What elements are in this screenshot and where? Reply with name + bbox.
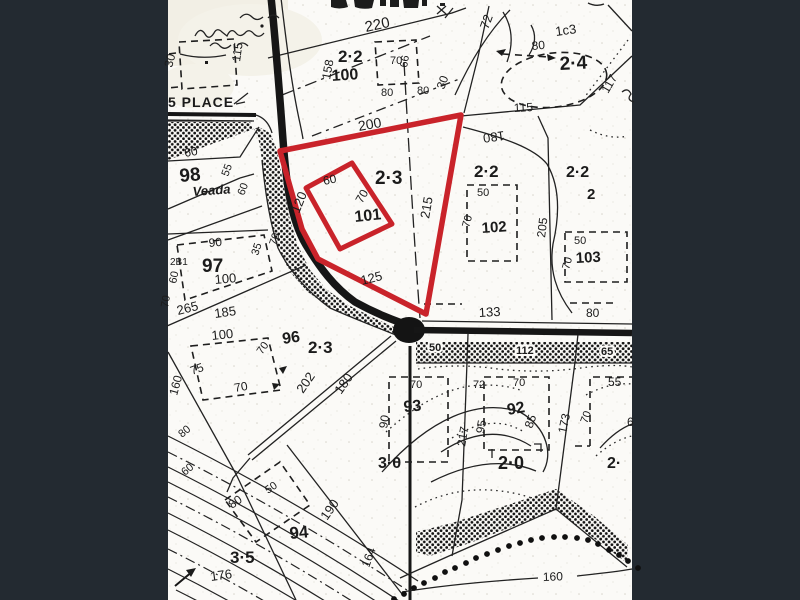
svg-text:90: 90 (208, 235, 223, 250)
svg-text:6: 6 (627, 415, 634, 429)
svg-text:2: 2 (587, 186, 595, 203)
svg-text:101: 101 (354, 206, 382, 226)
svg-text:50: 50 (477, 187, 489, 199)
svg-text:92: 92 (506, 399, 527, 419)
svg-text:3·0: 3·0 (378, 455, 401, 472)
svg-text:1c3: 1c3 (554, 21, 577, 39)
svg-text:100: 100 (214, 270, 237, 287)
svg-text:65: 65 (601, 346, 613, 358)
svg-text:66: 66 (398, 54, 412, 68)
svg-text:5 PLACE: 5 PLACE (168, 94, 234, 110)
svg-text:2·4: 2·4 (559, 53, 588, 75)
svg-text:80: 80 (586, 306, 600, 320)
svg-text:60: 60 (167, 270, 181, 284)
svg-text:90: 90 (376, 414, 392, 430)
svg-text:70: 70 (159, 294, 173, 308)
svg-text:205: 205 (534, 216, 550, 238)
svg-text:96: 96 (281, 329, 301, 348)
svg-text:2·2: 2·2 (338, 47, 363, 66)
svg-text:72: 72 (473, 379, 485, 391)
svg-text:60: 60 (183, 144, 199, 160)
svg-text:70: 70 (410, 379, 422, 391)
svg-text:70: 70 (513, 377, 525, 389)
svg-text:185: 185 (213, 303, 237, 321)
svg-text:80: 80 (417, 85, 429, 97)
svg-text:70: 70 (233, 379, 249, 395)
svg-text:115: 115 (229, 41, 246, 62)
svg-text:100: 100 (211, 326, 234, 343)
svg-text:176: 176 (209, 566, 233, 584)
svg-text:93: 93 (403, 397, 422, 415)
svg-text:2B1: 2B1 (170, 257, 188, 268)
svg-text:Veada: Veada (192, 181, 231, 199)
svg-text:55: 55 (608, 375, 622, 389)
svg-text:115: 115 (513, 100, 533, 115)
svg-text:95: 95 (473, 419, 489, 435)
svg-text:100: 100 (331, 66, 359, 85)
svg-text:2·: 2· (607, 455, 621, 472)
svg-text:80: 80 (531, 38, 546, 53)
svg-text:103: 103 (575, 249, 601, 267)
svg-text:2·3: 2·3 (308, 338, 333, 357)
svg-text:3·5: 3·5 (230, 548, 255, 567)
svg-text:102: 102 (481, 218, 507, 237)
svg-text:50: 50 (574, 235, 586, 247)
svg-text:94: 94 (289, 522, 310, 543)
svg-text:2·2: 2·2 (566, 164, 589, 181)
svg-text:180: 180 (482, 128, 506, 146)
svg-text:80: 80 (381, 87, 393, 99)
svg-text:2·3: 2·3 (375, 168, 402, 189)
svg-text:50: 50 (429, 342, 441, 354)
svg-text:133: 133 (478, 304, 500, 320)
svg-text:112: 112 (516, 345, 534, 357)
svg-text:2·0: 2·0 (498, 453, 524, 473)
svg-text:2·2: 2·2 (474, 162, 499, 181)
svg-text:160: 160 (543, 569, 564, 584)
